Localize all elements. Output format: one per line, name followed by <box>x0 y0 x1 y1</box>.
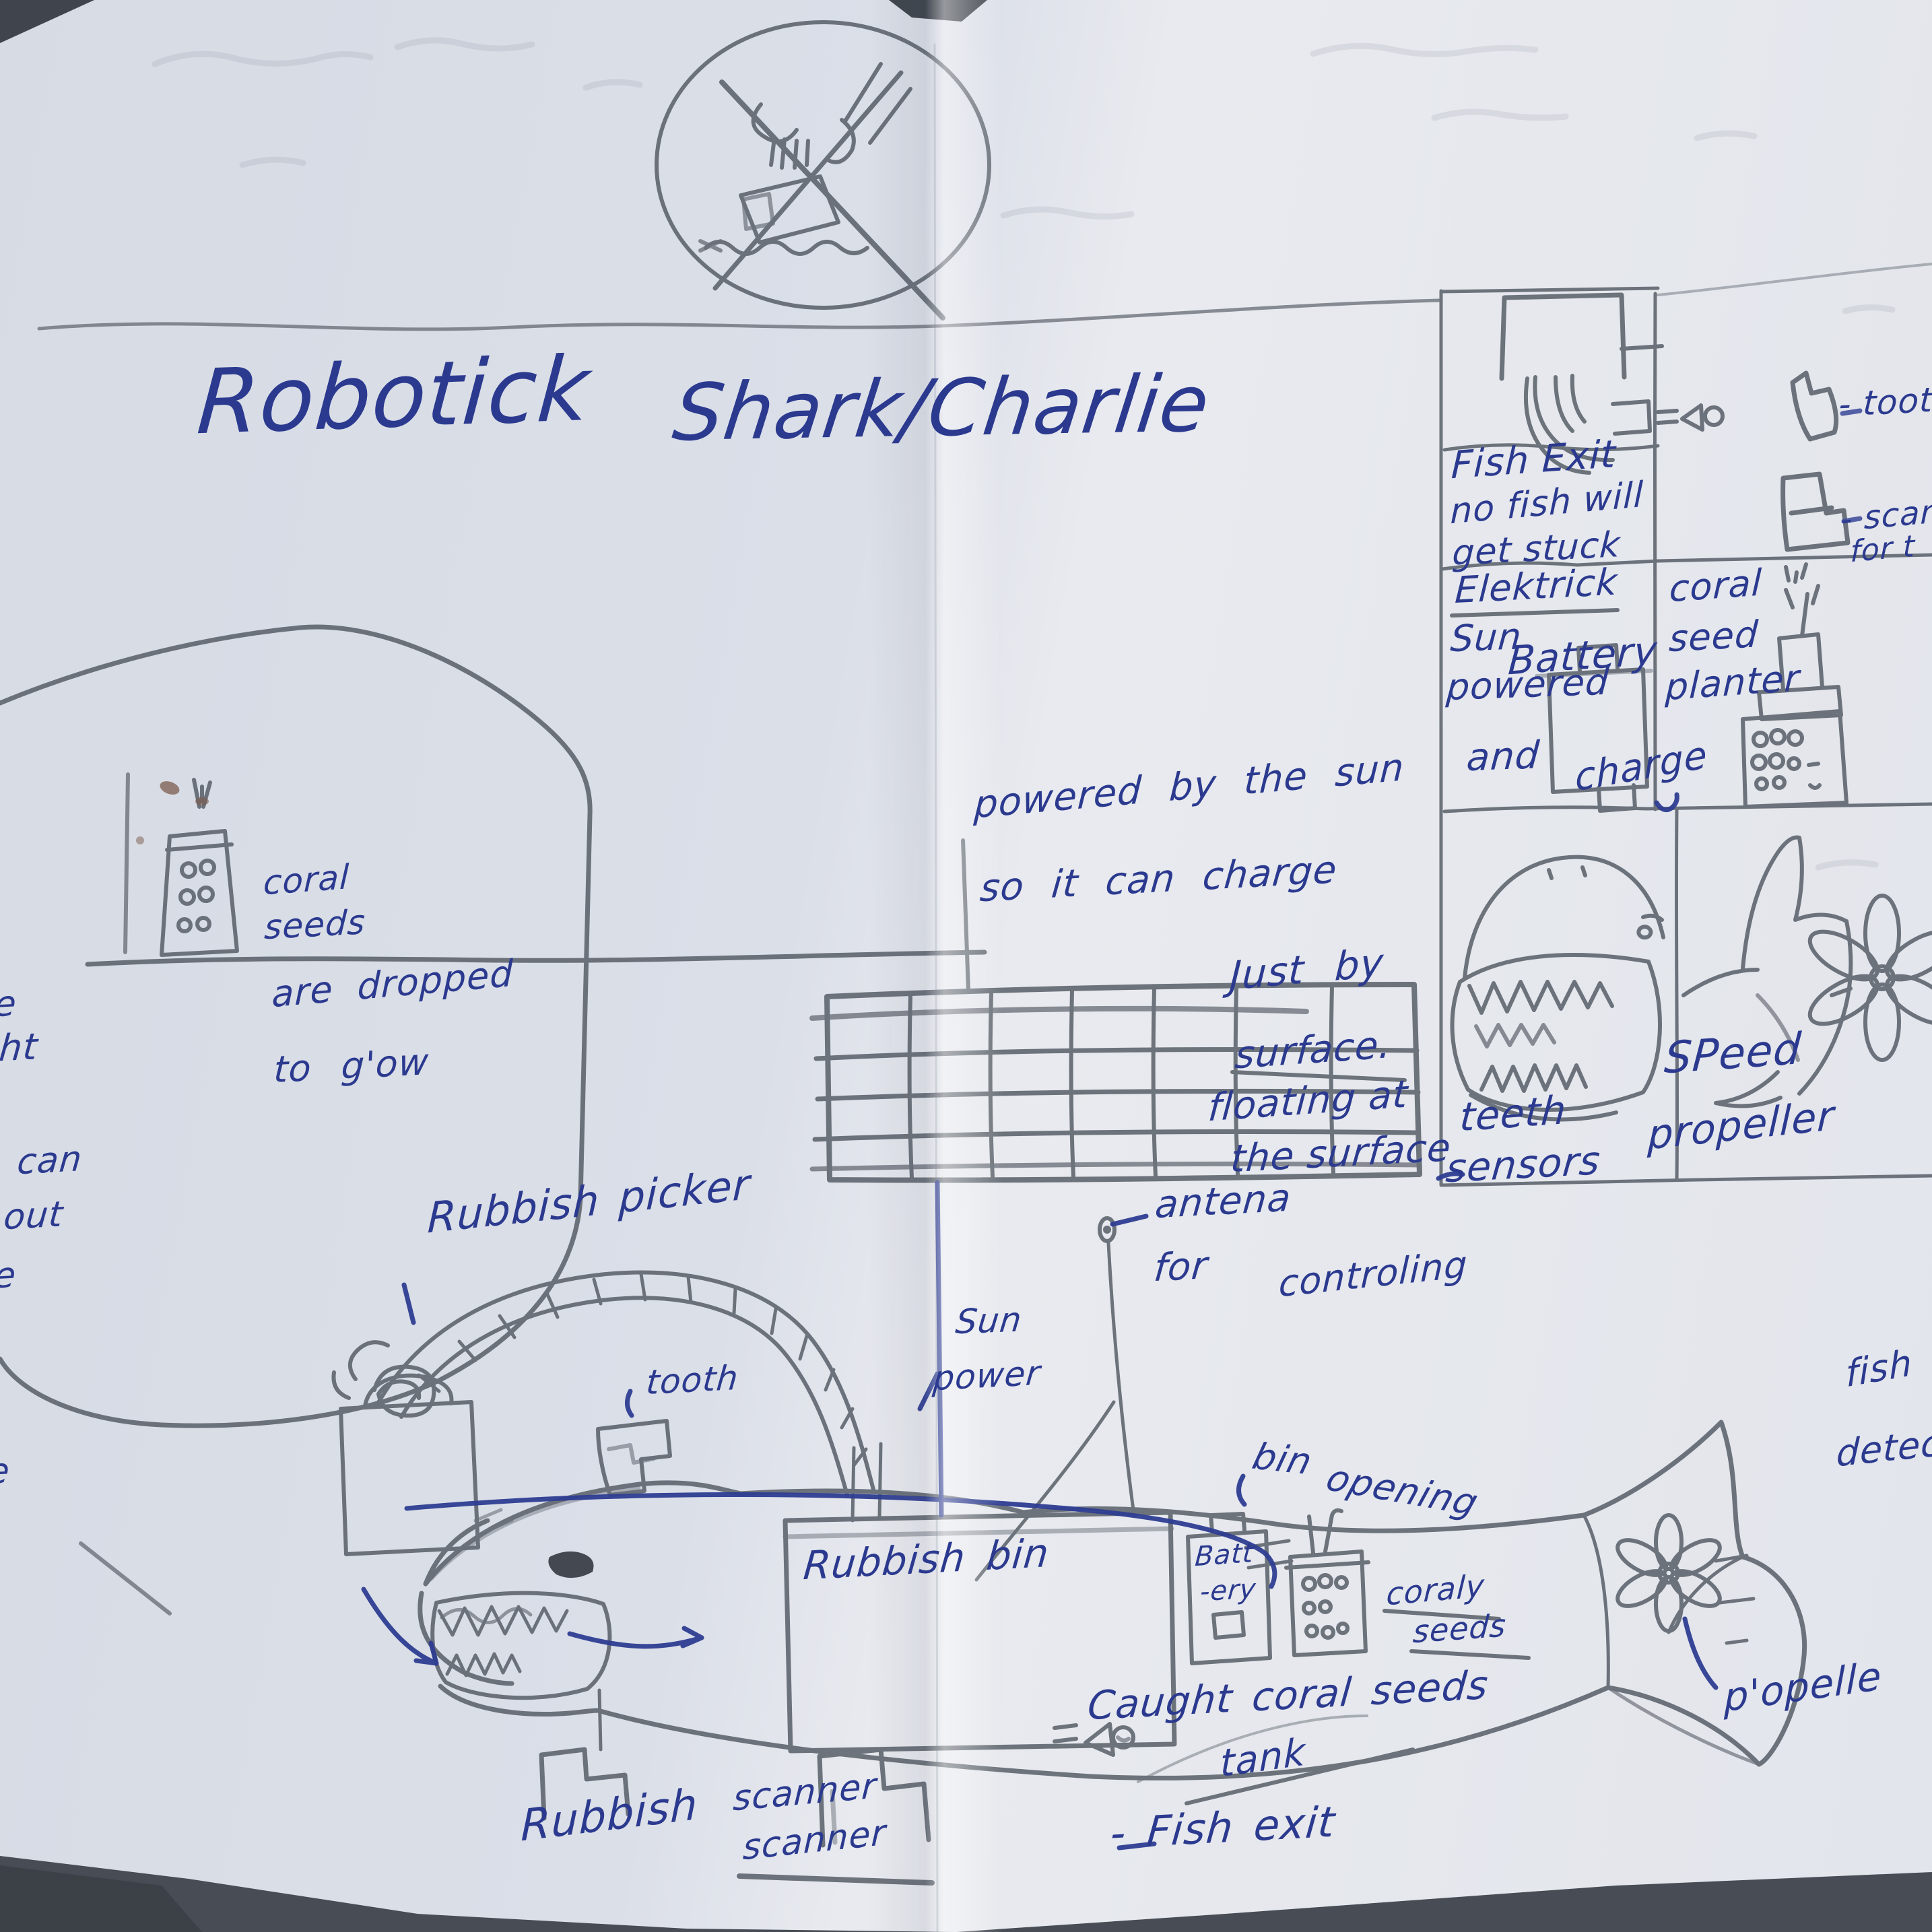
legend-flower-propeller <box>1803 896 1932 1060</box>
battery-label-line2: -ery <box>1199 1576 1257 1606</box>
edge-fragment: ght <box>0 1028 40 1068</box>
dropped-rubbish-icon <box>741 176 838 242</box>
bin-opening-label-word1: bin <box>1249 1438 1316 1480</box>
rubbish-bin-label: Rubbish bin <box>802 1533 1051 1585</box>
planter-label-line1: coral <box>1669 564 1763 607</box>
fish-detector-label-line1: fish <box>1845 1345 1913 1393</box>
edge-fragment: can <box>15 1141 84 1180</box>
rubbish-bag-icon <box>341 1402 478 1554</box>
ghost-writing <box>155 40 1892 867</box>
coral-note-line4: to g'ow <box>273 1044 430 1088</box>
surface-note-line2: surface. <box>1234 1026 1393 1075</box>
seabed-blob-sketch <box>0 627 590 1613</box>
battery-label-line1: Batt <box>1194 1539 1255 1570</box>
tooth-key-label: - tooth <box>1838 382 1932 422</box>
coral-note-line1: coral <box>263 860 350 900</box>
battery-word-label: Battery <box>1507 631 1659 681</box>
elektrick-label: Elektrick <box>1454 564 1618 609</box>
planter-label-line2: seed <box>1668 616 1760 657</box>
shark-teeth-sketch <box>1453 857 1663 1120</box>
scan-key-label-line2: for t <box>1850 532 1915 568</box>
antenna-label-line1: antena <box>1154 1179 1293 1224</box>
coral-planter-sketch <box>88 780 985 964</box>
fish-exit-bottom-label: - Fish exit <box>1109 1801 1337 1855</box>
flow-arrow-icon <box>570 1628 702 1646</box>
and-label: and <box>1465 737 1541 777</box>
no-littering-sign <box>657 22 989 318</box>
antenna-sketch <box>976 1218 1134 1580</box>
mouth-arrow-icon <box>364 1589 436 1663</box>
fish-exit-note-line1: Fish Exit <box>1451 436 1617 485</box>
sun-power-line <box>937 1182 941 1515</box>
planter-label-line3: planter <box>1665 660 1801 706</box>
paper-sheet: Robotick Shark/Charlie Fish Exit no fish… <box>0 0 1932 1932</box>
teeth-sensors-label-line2: sensors <box>1444 1141 1602 1188</box>
blue-pen-strokes <box>364 795 1716 1848</box>
water-surface-line <box>39 264 1932 329</box>
sun-power-label-line1: Sun <box>954 1303 1024 1339</box>
rubbish-picker-arm-sketch <box>333 1273 874 1554</box>
propeller-flower-sketch <box>1612 1515 1725 1631</box>
surface-note-line4: the surface <box>1229 1129 1453 1178</box>
sun-power-label-line2: power <box>932 1356 1042 1396</box>
teeth-sensors-label-line1: teeth <box>1459 1090 1568 1137</box>
shark-eye <box>548 1552 593 1578</box>
coral-seeds-small-label-line1: coraly <box>1386 1570 1486 1609</box>
coral-seeds-small-label-line2: seeds <box>1412 1609 1508 1647</box>
coral-note-line2: seeds <box>263 905 366 944</box>
edge-fragment: out <box>2 1197 65 1235</box>
drawing-canvas <box>0 0 1932 1932</box>
page-title-right: Shark/Charlie <box>669 365 1213 453</box>
edge-fragment: e <box>0 986 18 1022</box>
scan-key-label-line1: - scan <box>1840 495 1932 536</box>
tooth-label: tooth <box>645 1361 740 1399</box>
speed-propeller-label-line1: SPeed <box>1663 1028 1803 1081</box>
fish-detector-label-line2: detec <box>1836 1425 1932 1473</box>
page-title-left: Robotick <box>195 345 593 448</box>
antenna-label-line2: for <box>1152 1247 1209 1288</box>
caught-seeds-label-line2: tank <box>1220 1733 1306 1783</box>
